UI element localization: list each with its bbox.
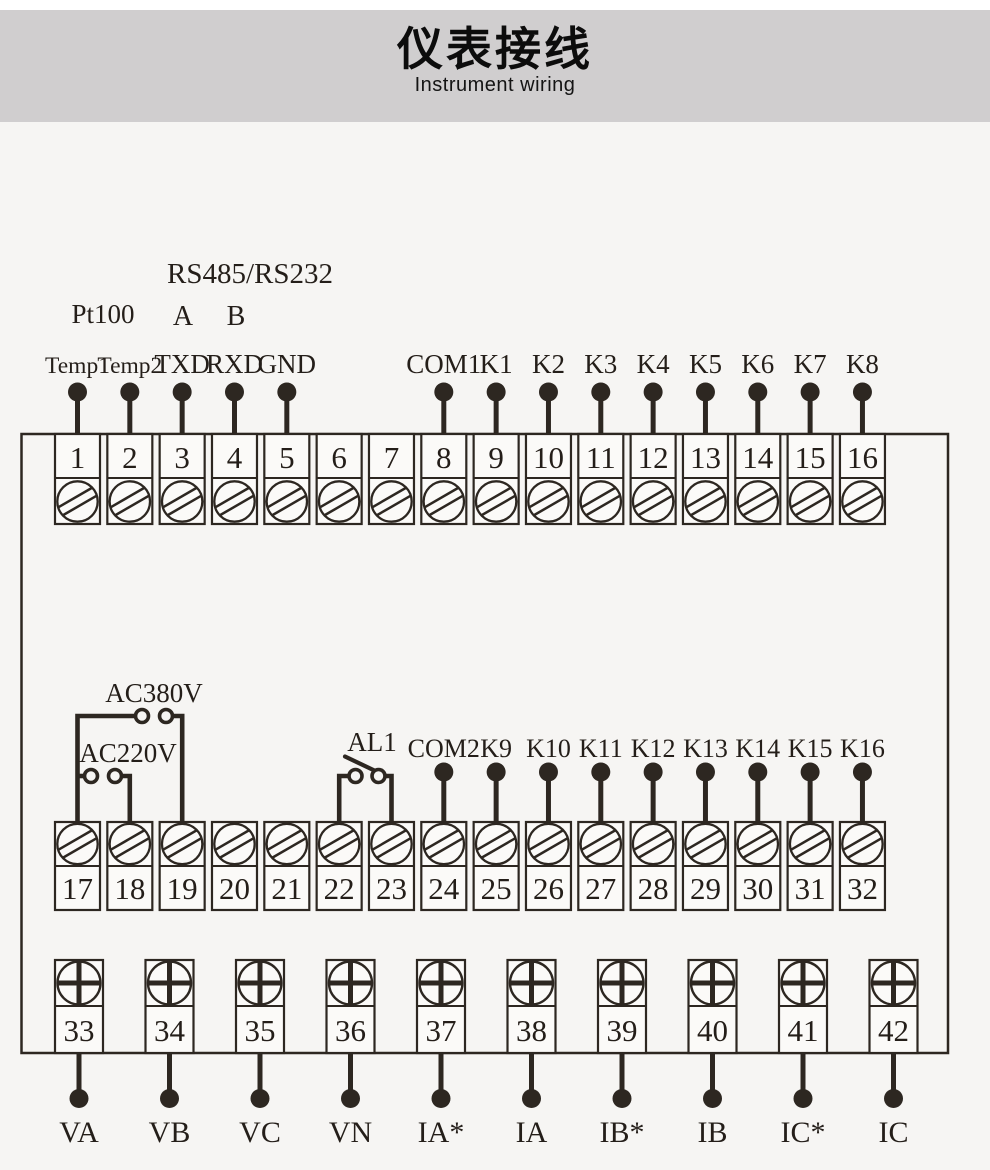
rs485-rs232-label: RS485/RS232 — [167, 258, 333, 290]
pin-K11: K11 — [579, 734, 623, 822]
terminal-33: 33 — [55, 960, 103, 1053]
pin-dot — [644, 763, 663, 782]
terminal-19: 19 — [160, 822, 205, 910]
pin-label: VN — [329, 1116, 372, 1149]
terminal-9: 9 — [474, 434, 519, 524]
terminal-number: 28 — [638, 871, 669, 906]
pin-dot — [794, 1089, 813, 1108]
terminal-32: 32 — [840, 822, 885, 910]
pin-label: K13 — [683, 734, 728, 763]
pin-dot — [696, 763, 715, 782]
pin-label: K1 — [480, 349, 513, 379]
terminal-number: 3 — [174, 440, 190, 475]
terminal-number: 30 — [742, 871, 773, 906]
pin-dot — [703, 1089, 722, 1108]
terminal-number: 6 — [331, 440, 347, 475]
rs485-b-label: B — [227, 301, 246, 332]
pin-dot — [801, 763, 820, 782]
pin-label: VB — [149, 1116, 191, 1149]
pin-COM2: COM2 — [408, 734, 480, 822]
pin-label: VA — [59, 1116, 99, 1149]
terminal-number: 4 — [227, 440, 243, 475]
ac380v-contact-right — [160, 710, 173, 723]
terminal-number: 10 — [533, 440, 564, 475]
terminal-24: 24 — [421, 822, 466, 910]
row2-pins: COM2K9K10K11K12K13K14K15K16 — [408, 734, 885, 822]
terminal-42: 42 — [870, 960, 918, 1053]
terminal-number: 7 — [384, 440, 400, 475]
terminal-20: 20 — [212, 822, 257, 910]
terminal-number: 20 — [219, 871, 250, 906]
pin-Temp2: Temp2 — [97, 353, 162, 434]
terminal-number: 35 — [245, 1013, 276, 1048]
terminal-36: 36 — [327, 960, 375, 1053]
pin-COM1: COM1 — [406, 349, 481, 434]
pin-TXD: TXD — [154, 349, 210, 434]
pin-label: K14 — [735, 734, 780, 763]
pin-label: VC — [239, 1116, 281, 1149]
terminal-37: 37 — [417, 960, 465, 1053]
terminal-13: 13 — [683, 434, 728, 524]
terminal-4: 4 — [212, 434, 257, 524]
pin-label: GND — [258, 349, 317, 379]
pin-K5: K5 — [689, 349, 722, 434]
pin-K10: K10 — [526, 734, 571, 822]
pin-dot — [434, 383, 453, 402]
pin-label: IC — [879, 1116, 909, 1149]
terminal-3: 3 — [160, 434, 205, 524]
terminal-26: 26 — [526, 822, 571, 910]
pin-dot — [432, 1089, 451, 1108]
terminal-number: 40 — [697, 1013, 728, 1048]
pin-VC: VC — [239, 1053, 281, 1149]
terminal-number: 13 — [690, 440, 721, 475]
pin-label: RXD — [206, 349, 263, 379]
terminal-number: 34 — [154, 1013, 186, 1048]
pin-dot — [539, 383, 558, 402]
pin-label: K10 — [526, 734, 571, 763]
terminal-40: 40 — [689, 960, 737, 1053]
row1-terminals: 12345678910111213141516 — [55, 434, 885, 524]
row1-pins: Temp1Temp2TXDRXDGNDCOM1K1K2K3K4K5K6K7K8 — [45, 349, 879, 434]
pin-label: K12 — [631, 734, 676, 763]
ac220v-wire-right — [122, 776, 130, 822]
row2-terminals: 17181920212223242526272829303132 — [55, 822, 885, 910]
al1-contact-left — [349, 770, 362, 783]
terminal-35: 35 — [236, 960, 284, 1053]
terminal-5: 5 — [264, 434, 309, 524]
ac380v-wire-right — [173, 716, 183, 822]
pin-K4: K4 — [637, 349, 670, 434]
pin-dot — [225, 383, 244, 402]
pin-K1: K1 — [480, 349, 513, 434]
terminal-8: 8 — [421, 434, 466, 524]
terminal-21: 21 — [264, 822, 309, 910]
pin-dot — [539, 763, 558, 782]
terminal-number: 16 — [847, 440, 878, 475]
pin-dot — [341, 1089, 360, 1108]
terminal-39: 39 — [598, 960, 646, 1053]
ac220v-contact-left — [85, 770, 98, 783]
terminal-number: 26 — [533, 871, 564, 906]
pin-dot — [591, 383, 610, 402]
pin-label: K9 — [480, 734, 512, 763]
pin-K2: K2 — [532, 349, 565, 434]
pin-K13: K13 — [683, 734, 728, 822]
pin-dot — [884, 1089, 903, 1108]
rs485-a-label: A — [173, 301, 194, 332]
pin-dot — [120, 383, 139, 402]
pin-dot — [251, 1089, 270, 1108]
pin-label: K3 — [584, 349, 617, 379]
terminal-number: 27 — [585, 871, 616, 906]
terminal-number: 18 — [114, 871, 145, 906]
terminal-23: 23 — [369, 822, 414, 910]
pin-label: K4 — [637, 349, 670, 379]
pin-VN: VN — [329, 1053, 372, 1149]
terminal-number: 9 — [488, 440, 504, 475]
pin-K6: K6 — [741, 349, 774, 434]
terminal-number: 23 — [376, 871, 407, 906]
terminal-number: 33 — [64, 1013, 95, 1048]
pin-label: K7 — [794, 349, 827, 379]
terminal-12: 12 — [631, 434, 676, 524]
terminal-number: 14 — [742, 440, 774, 475]
pin-label: K11 — [579, 734, 623, 763]
terminal-14: 14 — [735, 434, 780, 524]
terminal-25: 25 — [474, 822, 519, 910]
pin-K3: K3 — [584, 349, 617, 434]
pin-K9: K9 — [480, 734, 512, 822]
al1-wire-right — [385, 776, 392, 822]
terminal-number: 39 — [607, 1013, 638, 1048]
terminal-number: 1 — [70, 440, 86, 475]
terminal-number: 36 — [335, 1013, 366, 1048]
terminal-number: 38 — [516, 1013, 547, 1048]
pin-dot — [160, 1089, 179, 1108]
pin-dot — [613, 1089, 632, 1108]
terminal-number: 32 — [847, 871, 878, 906]
pin-VA: VA — [59, 1053, 99, 1149]
pin-label: Temp2 — [97, 353, 162, 379]
terminal-15: 15 — [788, 434, 833, 524]
pin-label: IB* — [600, 1116, 645, 1149]
pin-RXD: RXD — [206, 349, 263, 434]
ac380v-contact-left — [136, 710, 149, 723]
pin-dot — [748, 763, 767, 782]
terminal-38: 38 — [508, 960, 556, 1053]
pin-label: K2 — [532, 349, 565, 379]
terminal-number: 17 — [62, 871, 93, 906]
terminal-16: 16 — [840, 434, 885, 524]
terminal-number: 8 — [436, 440, 452, 475]
row3-terminals: 33343536373839404142 — [55, 960, 918, 1053]
pin-label: IA — [516, 1116, 548, 1149]
pin-dot — [434, 763, 453, 782]
pin-dot — [277, 383, 296, 402]
al1-switch-blade — [345, 757, 377, 772]
terminal-number: 12 — [638, 440, 669, 475]
pin-IA: IA — [516, 1053, 548, 1149]
terminal-number: 21 — [271, 871, 302, 906]
pin-dot — [748, 383, 767, 402]
pin-dot — [591, 763, 610, 782]
ac220v-label: AC220V — [79, 738, 177, 768]
pin-dot — [696, 383, 715, 402]
pin-label: COM1 — [406, 349, 481, 379]
ac220v-contact-right — [109, 770, 122, 783]
terminal-number: 31 — [795, 871, 826, 906]
al1-label: AL1 — [347, 727, 397, 757]
row3-pins: VAVBVCVNIA*IAIB*IBIC*IC — [59, 1053, 908, 1149]
pin-dot — [853, 383, 872, 402]
pt100-label: Pt100 — [71, 299, 134, 329]
pin-K8: K8 — [846, 349, 879, 434]
pin-K12: K12 — [631, 734, 676, 822]
terminal-10: 10 — [526, 434, 571, 524]
pin-dot — [522, 1089, 541, 1108]
pin-label: TXD — [154, 349, 210, 379]
terminal-17: 17 — [55, 822, 100, 910]
pin-label: IC* — [781, 1116, 826, 1149]
terminal-31: 31 — [788, 822, 833, 910]
terminal-29: 29 — [683, 822, 728, 910]
terminal-number: 11 — [586, 440, 616, 475]
pin-label: K16 — [840, 734, 885, 763]
pin-IB*: IB* — [600, 1053, 645, 1149]
terminal-number: 41 — [788, 1013, 819, 1048]
al1-wire-left — [339, 776, 349, 822]
terminal-2: 2 — [107, 434, 152, 524]
pin-label: K6 — [741, 349, 774, 379]
pin-label: COM2 — [408, 734, 480, 763]
terminal-number: 25 — [481, 871, 512, 906]
pin-K16: K16 — [840, 734, 885, 822]
terminal-number: 15 — [795, 440, 826, 475]
pin-K15: K15 — [788, 734, 833, 822]
terminal-1: 1 — [55, 434, 100, 524]
terminal-41: 41 — [779, 960, 827, 1053]
pin-label: IA* — [418, 1116, 465, 1149]
terminal-number: 19 — [167, 871, 198, 906]
terminal-6: 6 — [317, 434, 362, 524]
page: 仪表接线 Instrument wiring AC380V AC220V AL1… — [0, 0, 990, 1170]
pin-IB: IB — [698, 1053, 728, 1149]
terminal-34: 34 — [146, 960, 194, 1053]
pin-K7: K7 — [794, 349, 827, 434]
pin-label: K15 — [788, 734, 833, 763]
ac380v-label: AC380V — [105, 678, 203, 708]
terminal-number: 24 — [428, 871, 460, 906]
terminal-22: 22 — [317, 822, 362, 910]
terminal-number: 37 — [426, 1013, 457, 1048]
al1-contact-right — [372, 770, 385, 783]
terminal-number: 42 — [878, 1013, 909, 1048]
terminal-11: 11 — [578, 434, 623, 524]
terminal-28: 28 — [631, 822, 676, 910]
pin-label: K5 — [689, 349, 722, 379]
terminal-27: 27 — [578, 822, 623, 910]
pin-dot — [487, 763, 506, 782]
terminal-number: 2 — [122, 440, 138, 475]
pin-IC: IC — [879, 1053, 909, 1149]
pin-dot — [853, 763, 872, 782]
pin-dot — [68, 383, 87, 402]
terminal-number: 5 — [279, 440, 295, 475]
pin-K14: K14 — [735, 734, 780, 822]
pin-IC*: IC* — [781, 1053, 826, 1149]
pin-label: K8 — [846, 349, 879, 379]
pin-dot — [801, 383, 820, 402]
pin-GND: GND — [258, 349, 317, 434]
terminal-number: 29 — [690, 871, 721, 906]
pin-dot — [644, 383, 663, 402]
wiring-diagram: AC380V AC220V AL1 Pt100 A B RS485/RS232 … — [0, 0, 990, 1170]
pin-VB: VB — [149, 1053, 191, 1149]
pin-dot — [173, 383, 192, 402]
pin-dot — [70, 1089, 89, 1108]
pin-dot — [487, 383, 506, 402]
pin-label: IB — [698, 1116, 728, 1149]
terminal-7: 7 — [369, 434, 414, 524]
terminal-30: 30 — [735, 822, 780, 910]
terminal-number: 22 — [324, 871, 355, 906]
ac380v-wire-left — [78, 716, 136, 822]
terminal-18: 18 — [107, 822, 152, 910]
pin-IA*: IA* — [418, 1053, 465, 1149]
